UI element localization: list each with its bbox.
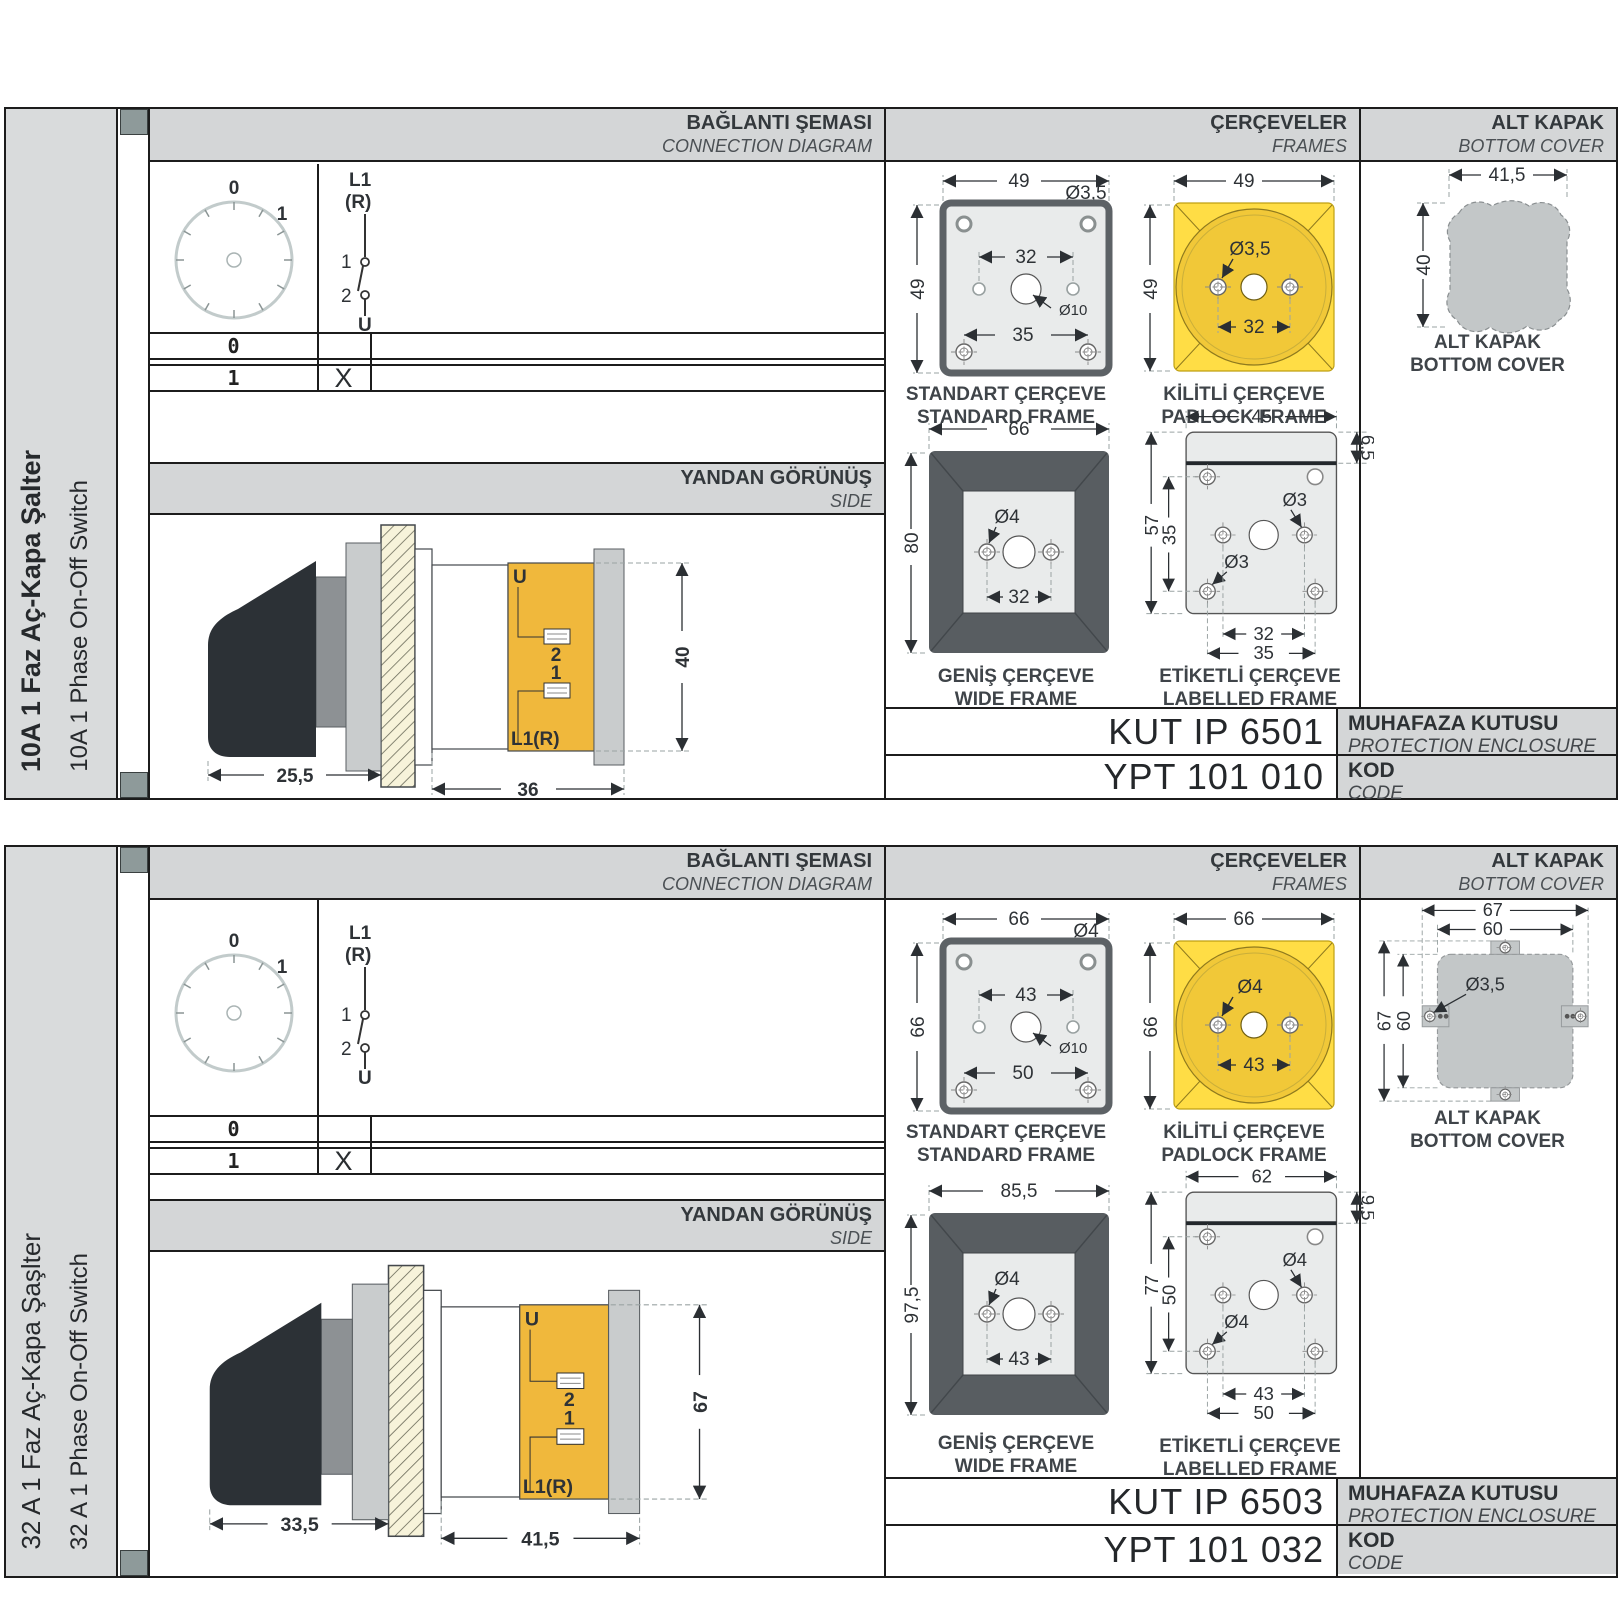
schematic-contact2-label: 2 (341, 1039, 352, 1060)
side-view-header: YANDAN GÖRÜNÜŞ SIDE (150, 462, 884, 515)
order-code-label: KOD CODE (1338, 756, 1616, 798)
wide-caption-tr: GENİŞ ÇERÇEVE (890, 1432, 1142, 1455)
wide-caption-en: WIDE FRAME (890, 1455, 1142, 1478)
lab-hole1-dia: Ø4 (1282, 1249, 1307, 1270)
wide-caption-tr: GENİŞ ÇERÇEVE (890, 665, 1142, 688)
mark-column-divider (370, 332, 372, 392)
table-row-1: 1 X (150, 1147, 884, 1175)
body-l1-label: L1(R) (511, 729, 560, 750)
header-bottom-cover: ALT KAPAK BOTTOM COVER (1359, 109, 1616, 162)
dim-b: 36 (517, 780, 538, 797)
schematic-l1-label: L1 (349, 923, 372, 944)
wide-dim-width: 66 (1008, 419, 1029, 440)
padlock-caption-tr: KİLİTLİ ÇERÇEVE (1128, 383, 1360, 406)
cover-dim-width: 41,5 (1489, 165, 1526, 186)
kod-label-tr: KOD (1348, 1529, 1616, 1553)
table-row-1: 1 X (150, 364, 884, 392)
cover-dim-h1: 67 (1375, 1011, 1395, 1031)
standard-frame-drawing: 49 Ø3,5 49 32 Ø10 35 (901, 167, 1131, 382)
schematic-contact1-label: 1 (341, 1005, 352, 1026)
enclosure-code: KUT IP 6503 (886, 1479, 1336, 1524)
cover-hole-dia: Ø3,5 (1466, 975, 1505, 995)
row0-mark (317, 1117, 370, 1141)
schematic-r-label: (R) (345, 192, 371, 213)
cover-caption-tr: ALT KAPAK (1359, 1107, 1616, 1130)
std-center-dia: Ø10 (1059, 302, 1087, 319)
frames-column-divider (884, 162, 886, 798)
panel-hatch (389, 1266, 424, 1537)
padlock-caption-tr: KİLİTLİ ÇERÇEVE (1128, 1121, 1360, 1144)
side-view-header-tr: YANDAN GÖRÜNÜŞ (150, 467, 872, 491)
terminal1-label: 1 (564, 1408, 575, 1430)
cover-dim-w2: 60 (1483, 919, 1503, 939)
dim-a: 33,5 (281, 1514, 319, 1536)
product-title-tr: 10A 1 Faz Aç-Kapa Şalter (16, 450, 47, 772)
wide-hole-dia: Ø4 (994, 1269, 1020, 1290)
schematic-contact2-label: 2 (341, 286, 352, 307)
side-view-drawing: U 2 1 L1(R) 67 33,5 41,5 (156, 1259, 776, 1549)
dim-height: 40 (673, 646, 694, 667)
side-view-header-en: SIDE (150, 491, 872, 512)
wide-dim-pitch: 32 (1008, 587, 1029, 608)
wide-frame-drawing: 66 80 Ø4 32 (899, 415, 1139, 661)
labelled-frame-drawing: 62 9,5 77 50 Ø4 Ø4 43 50 (1134, 1165, 1374, 1425)
enclosure-label: MUHAFAZA KUTUSU PROTECTION ENCLOSURE (1338, 709, 1616, 754)
dim-height: 67 (690, 1391, 712, 1413)
tab-marker-bottom (120, 1550, 148, 1576)
cover-dim-w1: 67 (1483, 900, 1503, 920)
pad-dim-pitch: 32 (1243, 317, 1264, 338)
std-dim-width: 49 (1008, 171, 1029, 192)
pad-dim-width: 66 (1233, 909, 1254, 930)
lab-dim-inner-height: 50 (1158, 1285, 1179, 1306)
side-view-header-tr: YANDAN GÖRÜNÜŞ (150, 1204, 872, 1228)
bottom-cover-drawing: 67 60 67 60 Ø3,5 (1363, 899, 1613, 1104)
table-row-0: 0 (150, 332, 884, 360)
pad-hole-dia: Ø4 (1237, 977, 1263, 998)
product-section-32a: 32 A 1 Faz Aç-Kapa Şaşlter 32 A 1 Phase … (4, 845, 1618, 1578)
pad-hole-dia: Ø3,5 (1229, 239, 1270, 260)
row1-mark: X (317, 1149, 370, 1173)
lab-dim-width: 62 (1252, 1165, 1273, 1186)
std-dim-height: 49 (908, 278, 929, 299)
tab-marker-top (120, 847, 148, 873)
frames-column-divider (884, 900, 886, 1576)
cover-dim-height: 40 (1414, 254, 1435, 275)
standard-caption-tr: STANDART ÇERÇEVE (886, 383, 1126, 406)
header-connection-tr: BAĞLANTI ŞEMASI (150, 112, 872, 136)
schematic-u-label: U (358, 1068, 372, 1085)
enclosure-label-en: PROTECTION ENCLOSURE (1348, 736, 1616, 757)
lab-dim-pitch2: 50 (1253, 1402, 1274, 1423)
header-frames-en: FRAMES (886, 136, 1347, 157)
labelled-frame-caption: ETİKETLİ ÇERÇEVE LABELLED FRAME (1130, 1435, 1370, 1481)
labelled-caption-tr: ETİKETLİ ÇERÇEVE (1130, 1435, 1370, 1458)
std-dim-pitch: 43 (1015, 985, 1036, 1006)
cover-caption-en: BOTTOM COVER (1359, 354, 1616, 377)
sidebar-32a: 32 A 1 Faz Aç-Kapa Şaşlter 32 A 1 Phase … (6, 847, 118, 1576)
header-cover-tr: ALT KAPAK (1361, 850, 1604, 874)
enclosure-label-tr: MUHAFAZA KUTUSU (1348, 712, 1616, 736)
dial-cell-divider (317, 164, 319, 392)
lab-hole1-dia: Ø3 (1282, 489, 1307, 510)
header-connection: BAĞLANTI ŞEMASI CONNECTION DIAGRAM (150, 109, 884, 162)
row0-position: 0 (150, 1117, 317, 1141)
table-row-0: 0 (150, 1115, 884, 1143)
std-dim-height: 66 (908, 1016, 929, 1037)
header-frames: ÇERÇEVELER FRAMES (884, 109, 1359, 162)
schematic-u-label: U (358, 315, 372, 332)
labelled-frame-caption: ETİKETLİ ÇERÇEVE LABELLED FRAME (1130, 665, 1370, 711)
side-view-header: YANDAN GÖRÜNÜŞ SIDE (150, 1199, 884, 1252)
product-title-en: 32 A 1 Phase On-Off Switch (66, 1253, 94, 1550)
body-u-label: U (525, 1308, 539, 1330)
enclosure-label-tr: MUHAFAZA KUTUSU (1348, 1482, 1616, 1506)
pad-dim-width: 49 (1233, 171, 1254, 192)
lab-dim-inner-height: 35 (1158, 525, 1179, 546)
contact-schematic: L1 (R) 1 2 U (319, 164, 439, 332)
pad-dim-pitch: 43 (1243, 1055, 1264, 1076)
lab-dim-band: 6,5 (1358, 435, 1374, 461)
header-frames-en: FRAMES (886, 874, 1347, 895)
body-l1-label: L1(R) (523, 1476, 573, 1498)
cover-body (1437, 954, 1572, 1087)
lab-dim-pitch: 32 (1253, 623, 1274, 644)
dial-position-1: 1 (277, 957, 288, 978)
labelled-caption-tr: ETİKETLİ ÇERÇEVE (1130, 665, 1370, 688)
product-title-tr: 32 A 1 Faz Aç-Kapa Şaşlter (16, 1233, 47, 1550)
padlock-frame-caption: KİLİTLİ ÇERÇEVE PADLOCK FRAME (1128, 1121, 1360, 1167)
enclosure-label: MUHAFAZA KUTUSU PROTECTION ENCLOSURE (1338, 1479, 1616, 1524)
header-cover-en: BOTTOM COVER (1361, 874, 1604, 895)
row0-position: 0 (150, 334, 317, 358)
lab-dim-pitch: 43 (1253, 1383, 1274, 1404)
wide-dim-pitch: 43 (1008, 1349, 1029, 1370)
row0-mark (317, 334, 370, 358)
lab-dim-width: 45 (1252, 405, 1273, 426)
dim-b: 41,5 (521, 1529, 559, 1549)
order-code: YPT 101 010 (886, 756, 1336, 798)
wide-dim-height: 97,5 (902, 1287, 923, 1324)
mark-column-divider (370, 1115, 372, 1175)
catalog-page: { "common": { "headers": { "connection_t… (0, 0, 1623, 1623)
std-dim-pitch2: 50 (1012, 1063, 1033, 1084)
standard-caption-tr: STANDART ÇERÇEVE (886, 1121, 1126, 1144)
dial-position-1: 1 (277, 204, 288, 225)
std-dim-pitch2: 35 (1012, 325, 1033, 346)
padlock-frame-drawing: 49 49 Ø3,5 32 (1134, 167, 1354, 382)
cover-caption-tr: ALT KAPAK (1359, 331, 1616, 354)
cover-dim-h2: 60 (1394, 1011, 1414, 1031)
header-cover-tr: ALT KAPAK (1361, 112, 1604, 136)
lab-dim-pitch2: 35 (1253, 642, 1274, 663)
product-section-10a: 10A 1 Faz Aç-Kapa Şalter 10A 1 Phase On-… (4, 107, 1618, 800)
dial-position-0: 0 (229, 931, 240, 952)
standard-frame-caption: STANDART ÇERÇEVE STANDARD FRAME (886, 1121, 1126, 1167)
labelled-frame-drawing: 45 6,5 57 35 Ø3 Ø3 32 35 (1134, 405, 1374, 665)
lab-hole2-dia: Ø3 (1224, 551, 1249, 572)
pad-dim-height: 66 (1141, 1016, 1162, 1037)
wide-frame-caption: GENİŞ ÇERÇEVE WIDE FRAME (890, 665, 1142, 711)
standard-caption-en: STANDARD FRAME (886, 1144, 1126, 1167)
wide-hole-dia: Ø4 (994, 507, 1020, 528)
kod-label-en: CODE (1348, 1553, 1616, 1574)
switch-handle (210, 1303, 322, 1506)
header-connection-en: CONNECTION DIAGRAM (150, 874, 872, 895)
header-connection: BAĞLANTI ŞEMASI CONNECTION DIAGRAM (150, 847, 884, 900)
standard-frame-drawing: 66 Ø4 66 43 Ø10 50 (901, 905, 1131, 1120)
side-view-header-en: SIDE (150, 1228, 872, 1249)
header-connection-en: CONNECTION DIAGRAM (150, 136, 872, 157)
wide-dim-height: 80 (902, 532, 923, 553)
header-bottom-cover: ALT KAPAK BOTTOM COVER (1359, 847, 1616, 900)
row1-position: 1 (150, 366, 317, 390)
header-frames-tr: ÇERÇEVELER (886, 112, 1347, 136)
header-cover-en: BOTTOM COVER (1361, 136, 1604, 157)
enclosure-code: KUT IP 6501 (886, 709, 1336, 754)
header-frames-tr: ÇERÇEVELER (886, 850, 1347, 874)
switch-dial-diagram: 0 1 (150, 164, 317, 332)
switch-handle (208, 561, 316, 757)
row1-position: 1 (150, 1149, 317, 1173)
dim-a: 25,5 (277, 766, 314, 787)
kod-label-en: CODE (1348, 783, 1616, 804)
bottom-cover-drawing: 41,5 40 (1363, 159, 1613, 359)
std-dim-pitch: 32 (1015, 247, 1036, 268)
cover-caption-en: BOTTOM COVER (1359, 1130, 1616, 1153)
padlock-frame-drawing: 66 66 Ø4 43 (1134, 905, 1354, 1120)
order-code-label: KOD CODE (1338, 1526, 1616, 1574)
enclosure-label-en: PROTECTION ENCLOSURE (1348, 1506, 1616, 1527)
terminal1-label: 1 (551, 663, 562, 684)
schematic-r-label: (R) (345, 945, 371, 966)
tab-marker-top (120, 109, 148, 135)
std-center-dia: Ø10 (1059, 1040, 1087, 1057)
dial-cell-divider (317, 900, 319, 1175)
wide-dim-width: 85,5 (1001, 1181, 1038, 1202)
schematic-contact1-label: 1 (341, 252, 352, 273)
order-code: YPT 101 032 (886, 1526, 1336, 1574)
wide-frame-caption: GENİŞ ÇERÇEVE WIDE FRAME (890, 1432, 1142, 1478)
bottom-cover-caption: ALT KAPAK BOTTOM COVER (1359, 331, 1616, 377)
sidebar-10a: 10A 1 Faz Aç-Kapa Şalter 10A 1 Phase On-… (6, 109, 118, 798)
tab-marker-bottom (120, 772, 148, 798)
schematic-l1-label: L1 (349, 170, 372, 191)
cover-blob-shape (1447, 201, 1570, 333)
lab-hole2-dia: Ø4 (1224, 1311, 1249, 1332)
header-frames: ÇERÇEVELER FRAMES (884, 847, 1359, 900)
header-connection-tr: BAĞLANTI ŞEMASI (150, 850, 872, 874)
lab-dim-band: 9,5 (1358, 1195, 1374, 1221)
dial-position-0: 0 (229, 178, 240, 199)
switch-dial-diagram: 0 1 (150, 917, 317, 1085)
contact-schematic: L1 (R) 1 2 U (319, 917, 439, 1085)
body-u-label: U (513, 567, 527, 588)
pad-dim-height: 49 (1141, 278, 1162, 299)
product-title-en: 10A 1 Phase On-Off Switch (66, 480, 94, 772)
std-dim-width: 66 (1008, 909, 1029, 930)
panel-hatch (381, 525, 415, 787)
kod-label-tr: KOD (1348, 759, 1616, 783)
bottom-cover-caption: ALT KAPAK BOTTOM COVER (1359, 1107, 1616, 1153)
row1-mark: X (317, 366, 370, 390)
side-view-drawing: U 2 1 L1(R) 40 25,5 36 (156, 521, 756, 797)
wide-frame-drawing: 85,5 97,5 Ø4 43 (899, 1177, 1139, 1423)
padlock-caption-en: PADLOCK FRAME (1128, 1144, 1360, 1167)
